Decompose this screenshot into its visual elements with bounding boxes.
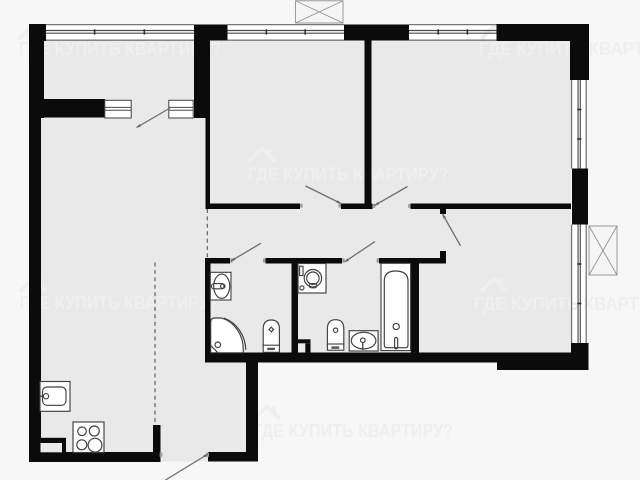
svg-text:ГДЕ КУПИТЬ КВАРТИРУ?: ГДЕ КУПИТЬ КВАРТИРУ? <box>20 293 219 313</box>
svg-text:ГДЕ КУПИТЬ КВАРТИРУ?: ГДЕ КУПИТЬ КВАРТИРУ? <box>479 39 640 59</box>
svg-text:ГДЕ КУПИТЬ КВАРТИРУ?: ГДЕ КУПИТЬ КВАРТИРУ? <box>474 294 640 314</box>
svg-text:ГДЕ КУПИТЬ КВАРТИРУ?: ГДЕ КУПИТЬ КВАРТИРУ? <box>248 165 449 185</box>
svg-text:ГДЕ КУПИТЬ КВАРТИРУ?: ГДЕ КУПИТЬ КВАРТИРУ? <box>253 421 453 441</box>
svg-text:ГДЕ КУПИТЬ КВАРТИРУ?: ГДЕ КУПИТЬ КВАРТИРУ? <box>19 39 221 59</box>
